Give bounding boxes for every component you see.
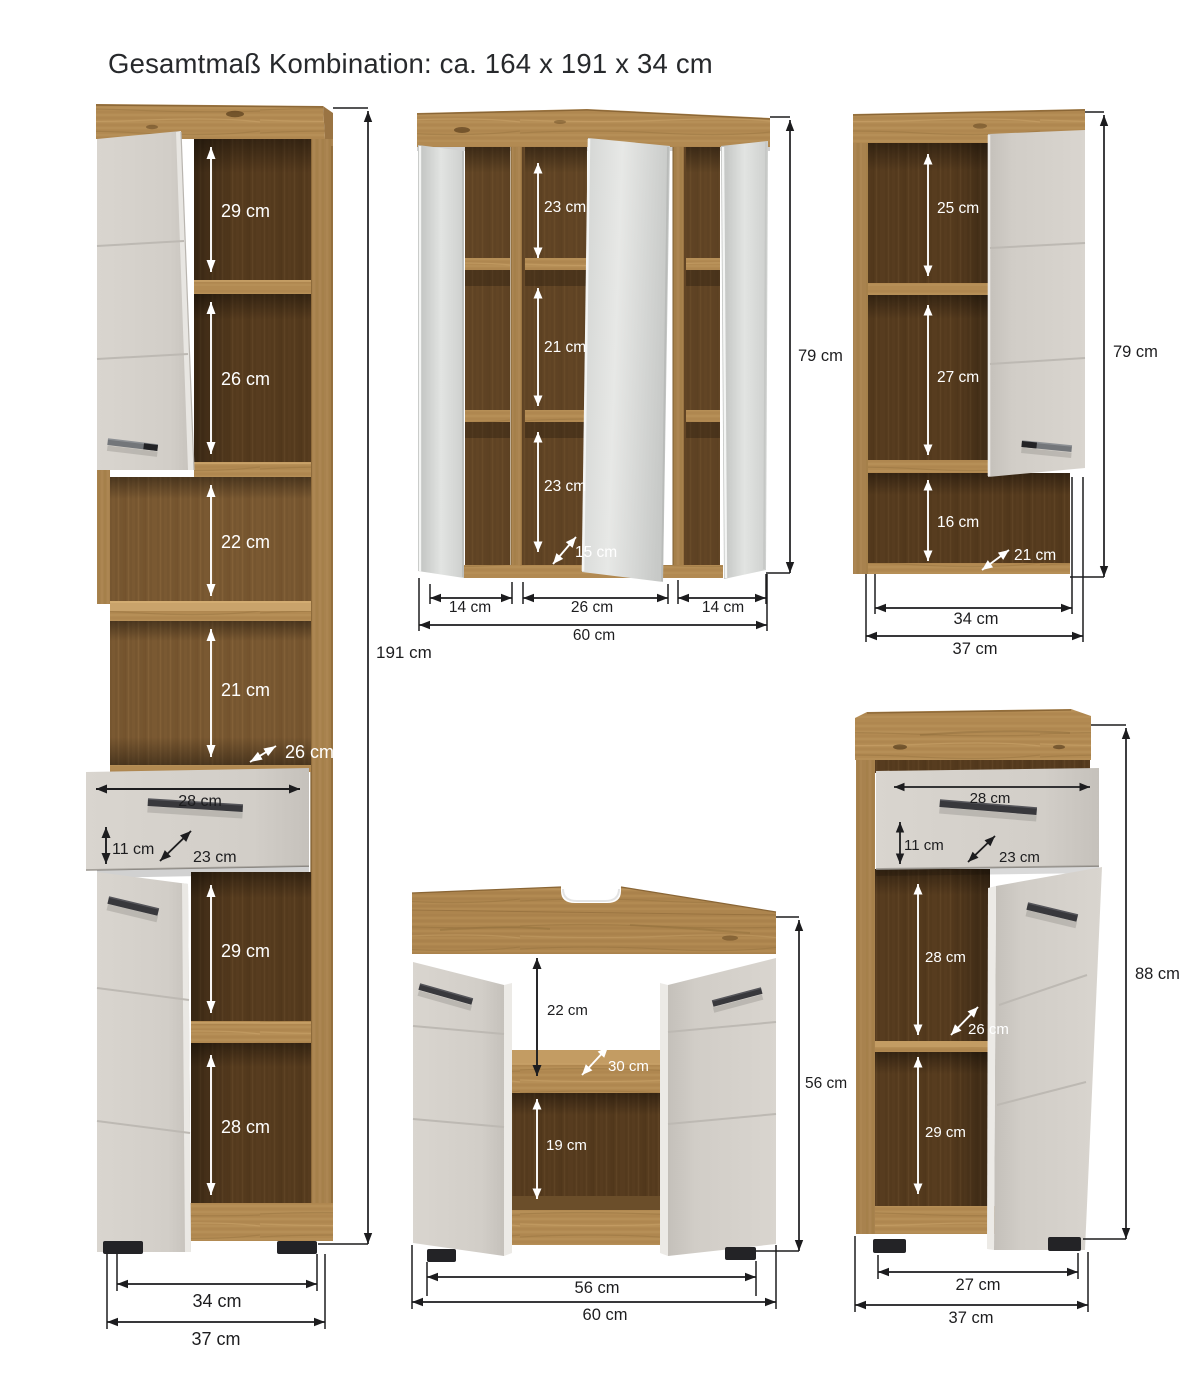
- svg-text:25 cm: 25 cm: [937, 200, 979, 217]
- svg-text:21 cm: 21 cm: [544, 339, 586, 356]
- svg-text:28 cm: 28 cm: [221, 1117, 270, 1137]
- svg-text:28 cm: 28 cm: [178, 793, 222, 810]
- svg-text:16 cm: 16 cm: [937, 514, 979, 531]
- svg-text:79 cm: 79 cm: [798, 347, 843, 365]
- svg-text:37 cm: 37 cm: [949, 1309, 994, 1327]
- svg-text:56 cm: 56 cm: [805, 1075, 847, 1092]
- svg-text:30 cm: 30 cm: [608, 1058, 649, 1075]
- svg-text:27 cm: 27 cm: [956, 1276, 1001, 1294]
- svg-text:21 cm: 21 cm: [221, 680, 270, 700]
- svg-text:11 cm: 11 cm: [112, 841, 154, 858]
- svg-text:15 cm: 15 cm: [575, 544, 617, 561]
- svg-text:23 cm: 23 cm: [544, 199, 586, 216]
- svg-text:11 cm: 11 cm: [904, 837, 944, 854]
- svg-text:19 cm: 19 cm: [546, 1137, 587, 1154]
- svg-text:14 cm: 14 cm: [449, 599, 491, 616]
- svg-text:34 cm: 34 cm: [954, 610, 999, 628]
- svg-text:26 cm: 26 cm: [285, 742, 334, 762]
- svg-text:60 cm: 60 cm: [573, 627, 615, 644]
- svg-text:28 cm: 28 cm: [925, 949, 966, 966]
- svg-text:26 cm: 26 cm: [968, 1021, 1009, 1038]
- svg-text:34 cm: 34 cm: [192, 1291, 241, 1311]
- svg-text:14 cm: 14 cm: [702, 599, 744, 616]
- svg-text:56 cm: 56 cm: [575, 1279, 620, 1297]
- svg-text:29 cm: 29 cm: [221, 201, 270, 221]
- svg-text:60 cm: 60 cm: [583, 1306, 628, 1324]
- svg-text:21 cm: 21 cm: [1014, 547, 1056, 564]
- svg-text:27 cm: 27 cm: [937, 369, 979, 386]
- svg-text:37 cm: 37 cm: [953, 640, 998, 658]
- svg-text:191 cm: 191 cm: [376, 643, 432, 662]
- svg-text:22 cm: 22 cm: [547, 1002, 588, 1019]
- svg-text:88 cm: 88 cm: [1135, 965, 1180, 983]
- svg-text:26 cm: 26 cm: [571, 599, 613, 616]
- svg-text:23 cm: 23 cm: [193, 849, 237, 866]
- svg-text:28 cm: 28 cm: [970, 790, 1011, 807]
- svg-text:79 cm: 79 cm: [1113, 343, 1158, 361]
- svg-text:26 cm: 26 cm: [221, 369, 270, 389]
- svg-text:23 cm: 23 cm: [544, 478, 586, 495]
- svg-text:29 cm: 29 cm: [925, 1124, 966, 1141]
- svg-text:Gesamtmaß Kombination: ca. 164: Gesamtmaß Kombination: ca. 164 x 191 x 3…: [108, 48, 713, 79]
- svg-text:37 cm: 37 cm: [191, 1329, 240, 1349]
- svg-text:22 cm: 22 cm: [221, 532, 270, 552]
- svg-text:23 cm: 23 cm: [999, 849, 1040, 866]
- svg-text:29 cm: 29 cm: [221, 941, 270, 961]
